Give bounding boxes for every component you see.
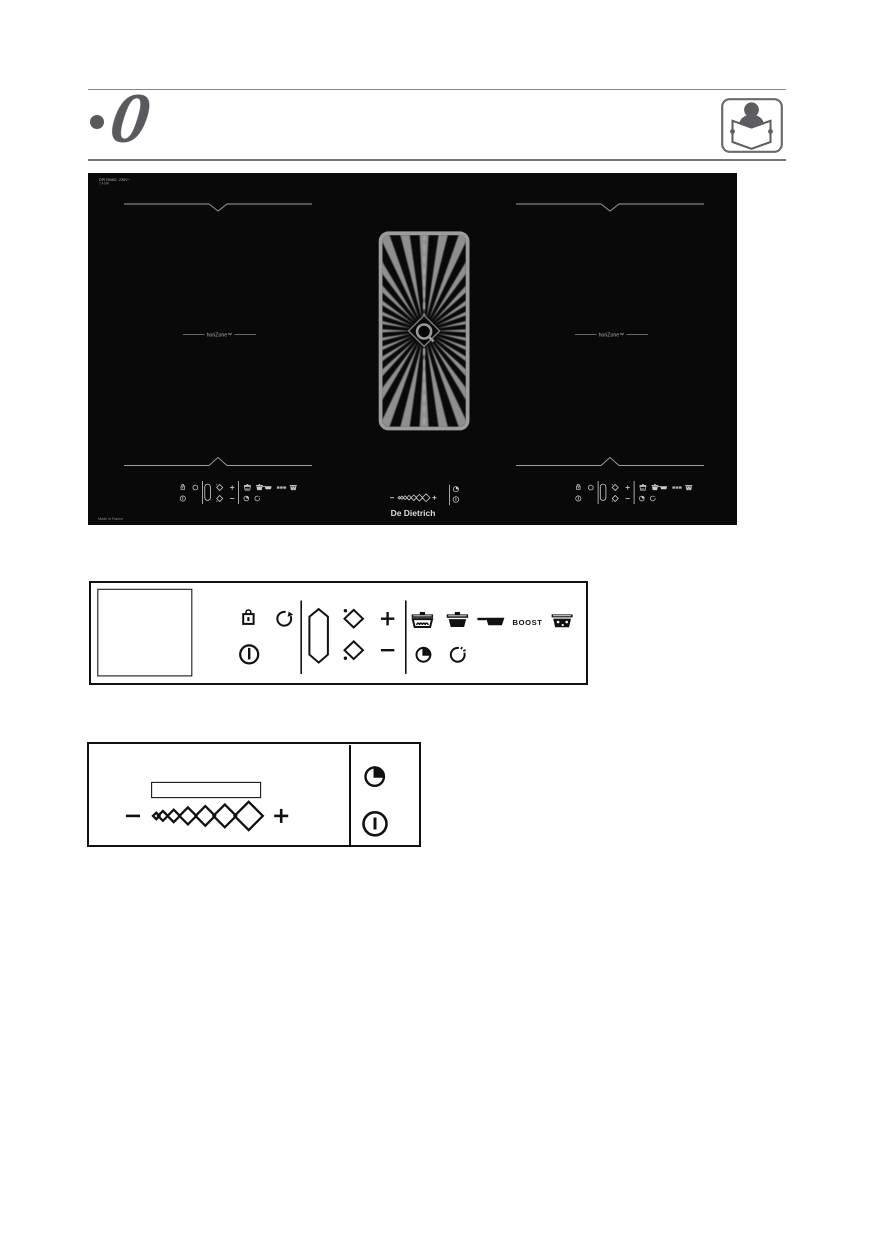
svg-text:horiZone™: horiZone™	[207, 332, 233, 338]
svg-text:Made in France: Made in France	[98, 517, 123, 521]
svg-text:De Dietrich: De Dietrich	[391, 508, 436, 518]
svg-text:7,4 kW: 7,4 kW	[99, 182, 109, 186]
svg-text:BOOST: BOOST	[512, 618, 542, 627]
svg-text:horiZone™: horiZone™	[599, 332, 625, 338]
